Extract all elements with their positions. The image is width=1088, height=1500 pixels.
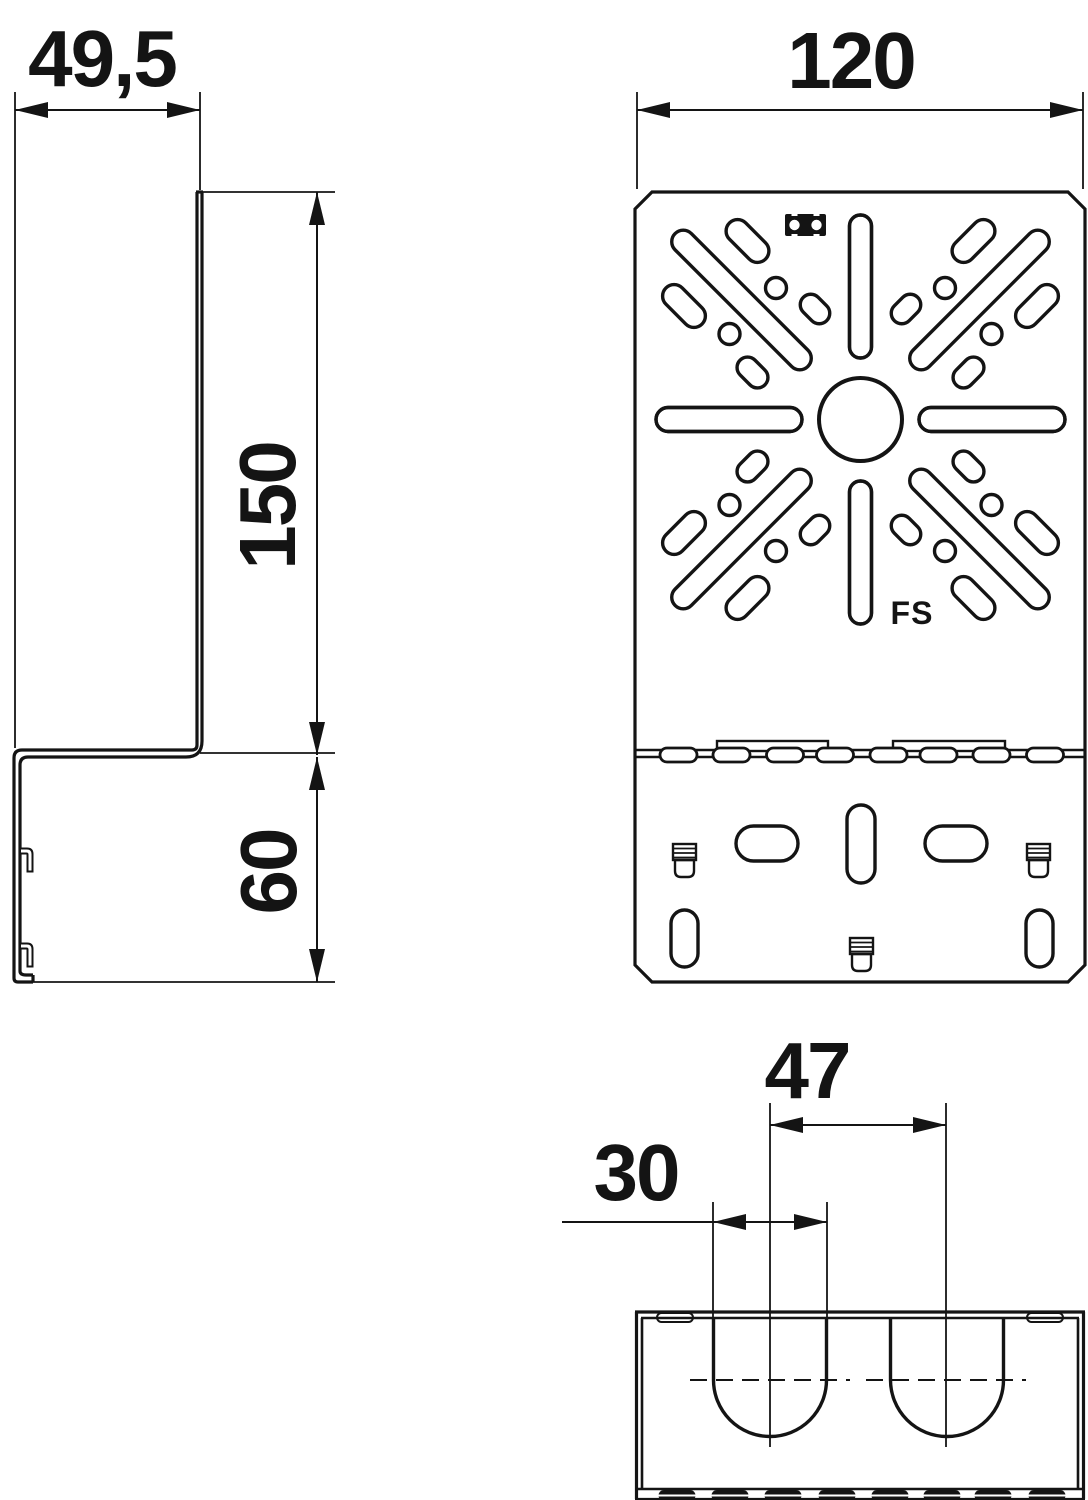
dimension-upper-height-label: 150 — [223, 442, 312, 569]
front-bend-row — [635, 1489, 1085, 1500]
bend-slot — [870, 748, 907, 762]
oval-vertical-left — [671, 910, 698, 967]
dimension-depth: 49,5 — [15, 14, 200, 748]
profile-inner-contour — [14, 192, 197, 982]
center-hole — [819, 378, 902, 461]
arrowhead-down — [309, 722, 325, 755]
oval-vertical-right — [1026, 910, 1053, 967]
oval-horizontal-left — [736, 826, 798, 861]
dimension-slot-width: 30 — [562, 1128, 827, 1330]
flange-top-view — [635, 1312, 1085, 1500]
bend-slot — [1027, 748, 1064, 762]
label-hole — [811, 220, 821, 230]
arrowhead-up — [309, 757, 325, 790]
pattern-quadrant-lower-right — [850, 408, 1066, 625]
front-view: 120 FS — [635, 16, 1085, 982]
arrowhead-left — [637, 102, 670, 118]
cable-slot-right — [891, 1318, 1004, 1437]
pattern-quadrant-upper-left — [656, 215, 872, 432]
bend-slot — [767, 748, 804, 762]
clamp-tab-cup — [852, 954, 871, 971]
label-notch — [814, 234, 820, 238]
clamp-tab-left — [673, 844, 696, 877]
arrowhead-right — [794, 1214, 827, 1230]
clamp-tab-right — [1027, 844, 1050, 877]
profile-outer-contour — [20, 192, 202, 975]
arrowhead-left — [713, 1214, 746, 1230]
arrowhead-right — [167, 102, 200, 118]
bottom-detail-view: 47 30 — [562, 1026, 1085, 1500]
dimension-width-label: 120 — [787, 16, 914, 105]
label-notch — [814, 212, 820, 216]
arrowhead-left — [15, 102, 48, 118]
dimension-depth-label: 49,5 — [28, 14, 176, 103]
label-notch — [792, 212, 798, 216]
part-marking: FS — [891, 595, 934, 631]
hook-tab-lower — [20, 944, 33, 967]
label-hole — [789, 220, 799, 230]
bend-slot — [973, 748, 1010, 762]
dimension-slot-spacing: 47 — [765, 1026, 946, 1447]
arrowhead-down — [309, 949, 325, 982]
slot-vertical-center — [847, 805, 875, 883]
dimension-lower-height-label: 60 — [224, 830, 313, 915]
sunburst-pattern — [656, 215, 1065, 624]
arrowhead-right — [913, 1117, 946, 1133]
bend-slot — [817, 748, 854, 762]
bend-slot — [920, 748, 957, 762]
pattern-quadrant-lower-left — [656, 408, 872, 625]
pattern-quadrant-upper-right — [850, 215, 1066, 432]
technical-drawing: 49,5 150 60 — [0, 0, 1088, 1500]
dimension-slot-width-label: 30 — [594, 1128, 679, 1217]
bracket-profile — [14, 192, 203, 982]
hook-tab-upper — [20, 849, 33, 872]
dimension-lower-height: 60 — [33, 757, 335, 982]
arrowhead-up — [309, 192, 325, 225]
label-notch — [792, 234, 798, 238]
clamp-tab-cup — [1029, 860, 1048, 877]
technical-drawing-page: 49,5 150 60 — [0, 0, 1088, 1500]
lower-flange-features — [671, 805, 1053, 971]
bend-slot — [660, 748, 697, 762]
arrowhead-left — [770, 1117, 803, 1133]
dimension-slot-spacing-label: 47 — [765, 1026, 850, 1115]
arrowhead-right — [1050, 102, 1083, 118]
label-plate-icon — [785, 212, 826, 238]
dimension-width: 120 — [637, 16, 1083, 189]
bend-line-row — [635, 741, 1085, 762]
clamp-tab-cup — [675, 860, 694, 877]
clamp-tab-bottom — [850, 938, 873, 971]
bend-slot — [713, 748, 750, 762]
oval-horizontal-right — [925, 826, 987, 861]
side-profile-view: 49,5 150 60 — [14, 14, 335, 982]
dimension-upper-height: 150 — [200, 192, 335, 755]
